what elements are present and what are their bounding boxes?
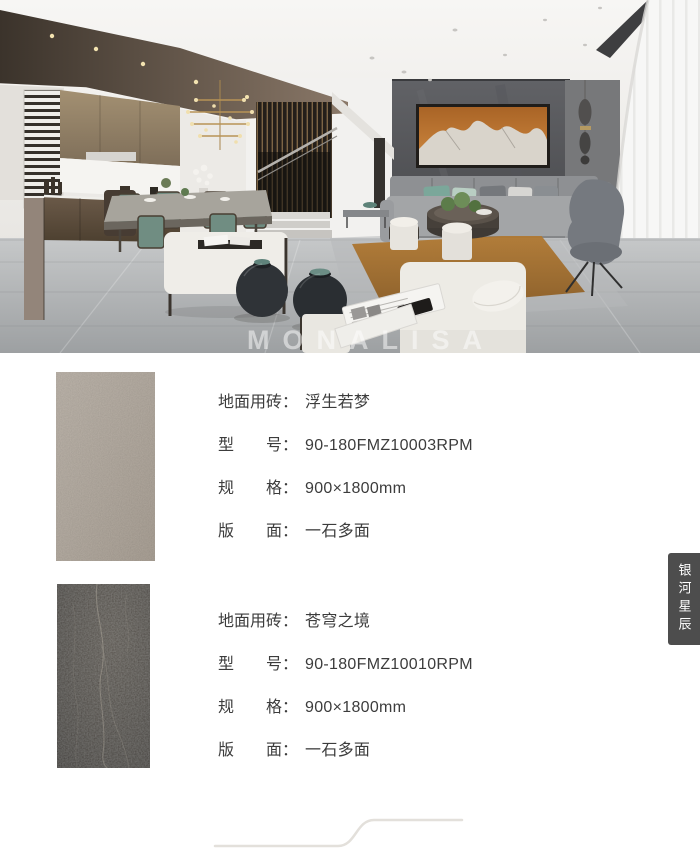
spec-value: 一石多面 bbox=[305, 740, 370, 762]
spec-colon: ： bbox=[282, 392, 298, 414]
s-curve-divider bbox=[0, 798, 700, 854]
spec-colon: ： bbox=[282, 740, 298, 762]
series-side-tab-label: 银河星辰 bbox=[678, 563, 691, 635]
catalog-page: MONALISA 地面用砖：浮生若 bbox=[0, 0, 700, 854]
spec-label: 版面 bbox=[218, 521, 282, 543]
spec-value: 900×1800mm bbox=[305, 478, 406, 500]
spec-value: 90-180FMZ10010RPM bbox=[305, 654, 473, 676]
tile-swatch-light bbox=[56, 372, 155, 561]
tile-swatch-dark bbox=[57, 584, 150, 768]
spec-row: 版面：一石多面 bbox=[218, 740, 473, 762]
photo-watermark: MONALISA bbox=[247, 325, 495, 353]
spec-row: 版面：一石多面 bbox=[218, 521, 473, 543]
series-side-tab[interactable]: 银河星辰 bbox=[668, 553, 700, 645]
spec-colon: ： bbox=[282, 435, 298, 457]
spec-value: 90-180FMZ10003RPM bbox=[305, 435, 473, 457]
spec-colon: ： bbox=[282, 654, 298, 676]
kitchen bbox=[24, 90, 180, 208]
spec-row: 型号：90-180FMZ10003RPM bbox=[218, 435, 473, 457]
spec-colon: ： bbox=[282, 611, 298, 633]
spec-row: 规格：900×1800mm bbox=[218, 478, 473, 500]
spec-label: 规格 bbox=[218, 478, 282, 500]
product-specs: 地面用砖：浮生若梦 型号：90-180FMZ10003RPM 规格：900×18… bbox=[218, 392, 473, 564]
spec-label: 规格 bbox=[218, 697, 282, 719]
spec-label: 型号 bbox=[218, 654, 282, 676]
spec-colon: ： bbox=[282, 478, 298, 500]
spec-value: 一石多面 bbox=[305, 521, 370, 543]
spec-value: 浮生若梦 bbox=[305, 392, 370, 414]
spec-value: 900×1800mm bbox=[305, 697, 406, 719]
spec-label: 版面 bbox=[218, 740, 282, 762]
product-specs: 地面用砖：苍穹之境 型号：90-180FMZ10010RPM 规格：900×18… bbox=[218, 611, 473, 783]
interior-photo: MONALISA bbox=[0, 0, 700, 353]
spec-row: 规格：900×1800mm bbox=[218, 697, 473, 719]
spec-label: 地面用砖 bbox=[218, 392, 282, 414]
mountain-artwork bbox=[416, 104, 550, 168]
spec-colon: ： bbox=[282, 521, 298, 543]
spec-value: 苍穹之境 bbox=[305, 611, 370, 633]
spec-label: 地面用砖 bbox=[218, 611, 282, 633]
spec-colon: ： bbox=[282, 697, 298, 719]
spec-row: 地面用砖：浮生若梦 bbox=[218, 392, 473, 414]
spec-row: 型号：90-180FMZ10010RPM bbox=[218, 654, 473, 676]
spec-row: 地面用砖：苍穹之境 bbox=[218, 611, 473, 633]
doorway bbox=[374, 138, 385, 208]
spec-label: 型号 bbox=[218, 435, 282, 457]
